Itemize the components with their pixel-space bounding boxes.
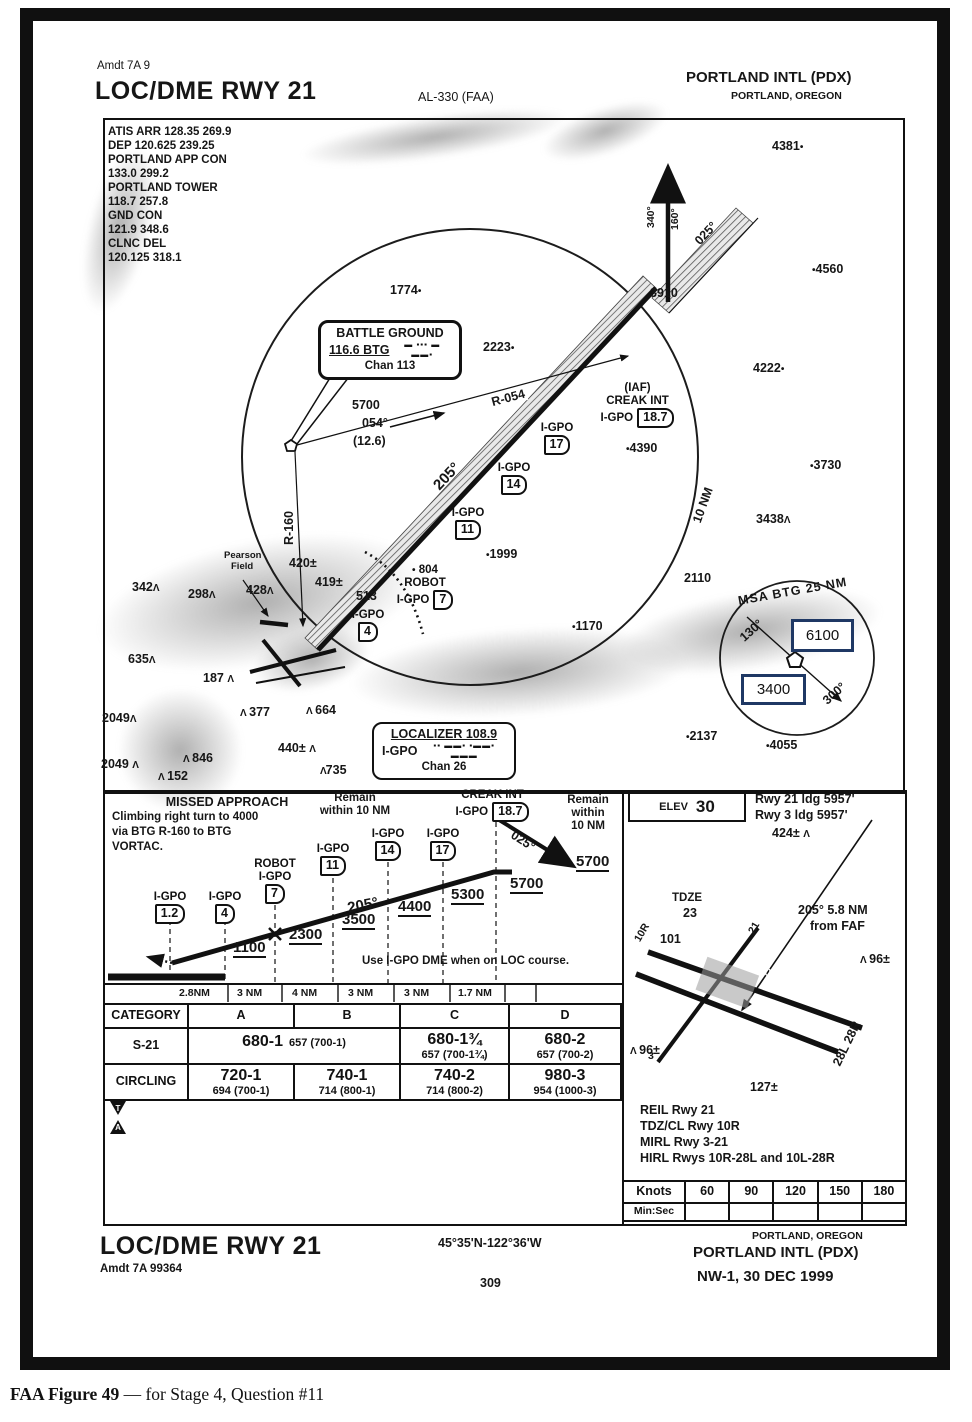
minsec-cell xyxy=(686,1204,728,1220)
comm-tower-name: PORTLAND TOWER xyxy=(108,182,218,195)
knots-150: 150 xyxy=(819,1182,861,1202)
spot-dot: • xyxy=(800,142,804,153)
localizer-box: LOCALIZER 108.9 I-GPO ▪▪ ▬▬▪ ▪▬▬▪ ▬▬▬ Ch… xyxy=(372,722,516,780)
spot-elevation: •4055 xyxy=(766,738,797,753)
spot-value: 4560 xyxy=(816,262,844,276)
obstacle-icon: Λ xyxy=(630,1046,636,1057)
remain-within-note-right: Remain within 10 NM xyxy=(558,794,618,834)
comm-appcon-name: PORTLAND APP CON xyxy=(108,154,227,167)
profile-fix-robot: ROBOT I-GPO 7 xyxy=(248,858,302,904)
amendment-note: Amdt 7A 9 xyxy=(97,60,150,73)
al-number: AL-330 (FAA) xyxy=(418,90,494,104)
spot-elevation: •3730 xyxy=(810,458,841,473)
sketch-obstacle: Λ 96± xyxy=(630,1043,660,1058)
spot-value: 846 xyxy=(192,751,213,765)
minimum-sub: 657 (700-1) xyxy=(289,1037,346,1049)
figure-caption-number: FAA Figure 49 xyxy=(10,1384,119,1404)
spot-elevation: 2223• xyxy=(483,340,514,355)
lighting-note: TDZ/CL Rwy 10R xyxy=(640,1119,740,1133)
comm-clnc-name: CLNC DEL xyxy=(108,238,166,251)
notes-box-border xyxy=(103,1095,624,1226)
fix-ident: I-GPO xyxy=(372,828,405,840)
dme-usage-note: Use I-GPO DME when on LOC course. xyxy=(362,955,569,968)
sketch-obstacle: 127± xyxy=(750,1080,778,1094)
spot-value: 4390 xyxy=(630,441,658,455)
spot-value: 3438 xyxy=(756,512,784,526)
footer-coordinates: 45°35'N-122°36'W xyxy=(438,1236,542,1250)
spot-value: 298 xyxy=(188,587,209,601)
segment-distance: 2.8NM xyxy=(179,987,210,999)
remain-within-note: Remain within 10 NM xyxy=(300,792,410,818)
footer-chart-title: LOC/DME RWY 21 xyxy=(100,1232,321,1261)
spot-elevation: •1170 xyxy=(572,619,603,634)
dme-box: 18.7 xyxy=(492,802,529,822)
minimums-header-a: A xyxy=(189,1005,293,1027)
minimums-s21-c: 680-1¾ 657 (700-1¾) xyxy=(401,1029,508,1063)
knots-label: Knots xyxy=(624,1182,684,1202)
dme-box: 14 xyxy=(501,475,528,495)
dme-box: 11 xyxy=(455,520,481,540)
obstacle-icon: Λ xyxy=(149,655,155,666)
spot-value: 420± xyxy=(289,556,317,570)
spot-elevation: 4381• xyxy=(772,139,803,154)
fix-ident: I-GPO xyxy=(317,843,350,855)
fix-ident: I-GPO xyxy=(154,891,187,903)
profile-altitude-4400: 4400 xyxy=(398,899,431,917)
dme-box: 4 xyxy=(215,904,235,924)
minimum-value: 980-3 xyxy=(545,1067,586,1085)
iaf-tag: (IAF) xyxy=(624,382,650,394)
remain-line: 10 NM xyxy=(558,820,618,833)
spot-value: 2223 xyxy=(483,340,511,354)
spot-value: 1999 xyxy=(490,547,518,561)
lighting-note: MIRL Rwy 3-21 xyxy=(640,1135,728,1149)
minsec-cell xyxy=(730,1204,772,1220)
minimum-value: 720-1 xyxy=(221,1067,262,1085)
segment-distance: 3 NM xyxy=(348,987,373,999)
minimums-circling-b: 740-1 714 (800-1) xyxy=(295,1065,399,1099)
comm-appcon-freq: 133.0 299.2 xyxy=(108,168,169,181)
spot-elevation: 3910 xyxy=(650,286,678,300)
obstacle-icon: Λ xyxy=(240,708,246,719)
remain-line: within 10 NM xyxy=(300,805,410,818)
spot-elevation: •4560 xyxy=(812,262,843,277)
figure-caption: FAA Figure 49 — for Stage 4, Question #1… xyxy=(10,1384,324,1405)
tdze-value: 23 xyxy=(683,906,697,920)
spot-value: 96± xyxy=(869,952,890,966)
figure-caption-text: — for Stage 4, Question #11 xyxy=(119,1384,324,1404)
dme-box: 14 xyxy=(375,841,402,861)
footer-city: PORTLAND, OREGON xyxy=(752,1230,863,1242)
pearson-field-label: Field xyxy=(231,562,253,573)
rwy21-landing-distance: Rwy 21 ldg 5957' xyxy=(755,792,855,806)
navaid-channel: Chan 113 xyxy=(329,360,451,373)
sketch-spot-101: 101 xyxy=(660,932,681,946)
msa-altitude-low: 3400 xyxy=(757,681,790,698)
spot-elevation: •1999 xyxy=(486,547,517,562)
profile-fix-17: I-GPO 17 xyxy=(416,828,470,861)
localizer-ident: I-GPO xyxy=(382,744,417,758)
minsec-cell xyxy=(863,1204,905,1220)
spot-elevation: 298Λ xyxy=(188,587,215,602)
minimums-circling-d: 980-3 954 (1000-3) xyxy=(510,1065,620,1099)
missed-approach-text: via BTG R-160 to BTG xyxy=(112,826,232,839)
airport-name: PORTLAND INTL (PDX) xyxy=(686,69,852,86)
radial-160: R-160 xyxy=(282,511,296,545)
airport-city: PORTLAND, OREGON xyxy=(731,90,842,102)
localizer-channel: Chan 26 xyxy=(382,761,506,774)
minimum-sub: 954 (1000-3) xyxy=(534,1085,597,1097)
spot-elevation: 4222• xyxy=(753,361,784,376)
spot-elevation: 428Λ xyxy=(246,583,273,598)
spot-value: 2049 xyxy=(102,711,130,725)
rwy3-landing-distance: Rwy 3 ldg 5957' xyxy=(755,808,848,822)
minimums-row-label-s21: S-21 xyxy=(105,1029,187,1063)
spot-value: 187 xyxy=(203,671,224,685)
spot-value: 2137 xyxy=(690,729,718,743)
footer-airport: PORTLAND INTL (PDX) xyxy=(693,1244,859,1261)
sketch-obstacle: 424± Λ xyxy=(772,826,809,841)
spot-elevation: Λ 846 xyxy=(183,751,213,766)
obstacle-icon: Λ xyxy=(860,955,866,966)
dme-box: 7 xyxy=(433,590,453,610)
navaid-freq: 116.6 BTG xyxy=(329,343,389,357)
minimums-header-b: B xyxy=(295,1005,399,1027)
knots-90: 90 xyxy=(730,1182,772,1202)
spot-value: 2110 xyxy=(684,571,711,585)
minimums-header-c: C xyxy=(401,1005,508,1027)
obstacle-icon: Λ xyxy=(158,772,164,783)
msa-altitude-high: 6100 xyxy=(806,627,839,644)
iaf-creak-label: (IAF) CREAK INT I-GPO 18.7 xyxy=(590,382,685,428)
spot-elevation: 1774• xyxy=(390,283,421,298)
profile-creak-label: CREAK INT I-GPO 18.7 xyxy=(430,789,555,822)
morse-code: ▬ ▪▪▪ ▬ ▬▬▪ xyxy=(393,340,451,360)
dme-box: 1.2 xyxy=(155,904,185,924)
minsec-label: Min:Sec xyxy=(624,1204,684,1220)
obstacle-icon: Λ xyxy=(227,674,233,685)
elev-label: ELEV xyxy=(659,801,688,814)
spot-elevation: 2049 Λ xyxy=(101,757,138,772)
spot-value: 1774 xyxy=(390,283,418,297)
profile-fix-1-2: I-GPO 1.2 xyxy=(143,891,197,924)
tdze-label: TDZE xyxy=(672,892,702,905)
fix-robot: • 804 ROBOT I-GPO 7 xyxy=(385,564,465,610)
obstacle-icon: Λ xyxy=(209,590,215,601)
feeder-course: 054° xyxy=(362,416,388,430)
spot-elevation: 187 Λ xyxy=(203,671,233,686)
battle-ground-vortac-box: BATTLE GROUND 116.6 BTG ▬ ▪▪▪ ▬ ▬▬▪ Chan… xyxy=(318,320,462,380)
obstacle-icon: Λ xyxy=(803,829,809,840)
minimums-header-d: D xyxy=(510,1005,620,1027)
profile-altitude-5700: 5700 xyxy=(510,876,543,894)
msa-annotation-3400: 3400 xyxy=(741,674,806,705)
obstacle-icon: Λ xyxy=(306,706,312,717)
dme-box: 4 xyxy=(358,622,378,642)
alternate-symbol-letter: A xyxy=(115,1123,121,1132)
robot-name: ROBOT xyxy=(404,577,446,589)
localizer-freq: LOCALIZER 108.9 xyxy=(382,727,506,741)
fix-igpo-14: I-GPO 14 xyxy=(487,462,541,495)
fix-ident: I-GPO xyxy=(601,412,634,424)
fix-ident: I-GPO xyxy=(541,422,574,434)
minimums-circling-a: 720-1 694 (700-1) xyxy=(189,1065,293,1099)
dme-box: 11 xyxy=(320,856,346,876)
spot-value: 4381 xyxy=(772,139,800,153)
fix-ident: I-GPO xyxy=(397,594,430,606)
approach-chart-page: Amdt 7A 9 LOC/DME RWY 21 AL-330 (FAA) PO… xyxy=(0,0,972,1422)
fix-ident: I-GPO xyxy=(259,871,292,883)
profile-altitude-5700-creak: 5700 xyxy=(576,854,609,872)
minimums-row-label-circling: CIRCLING xyxy=(105,1065,187,1099)
morse-code: ▪▪ ▬▬▪ ▪▬▬▪ ▬▬▬ xyxy=(422,741,506,761)
robot-name: ROBOT xyxy=(254,858,296,870)
remain-line: within xyxy=(558,807,618,820)
dme-box: 17 xyxy=(430,841,457,861)
spot-value: 4055 xyxy=(770,738,798,752)
obstacle-icon: Λ xyxy=(784,515,790,526)
spot-elevation: 419± xyxy=(315,575,343,589)
missed-approach-title-text: MISSED APPROACH xyxy=(166,795,288,809)
obstacle-icon: Λ xyxy=(132,760,138,771)
faf-distance-note2: from FAF xyxy=(810,919,865,933)
spot-value: 1170 xyxy=(576,619,603,633)
spot-dot: • xyxy=(781,364,785,375)
profile-fix-14: I-GPO 14 xyxy=(361,828,415,861)
profile-fix-4: I-GPO 4 xyxy=(198,891,252,924)
spot-value: 152 xyxy=(167,769,188,783)
lighting-note: REIL Rwy 21 xyxy=(640,1103,715,1117)
spot-value: 4222 xyxy=(753,361,781,375)
footer-edition-date: NW-1, 30 DEC 1999 xyxy=(697,1268,833,1285)
faf-distance-note: 205° 5.8 NM xyxy=(798,903,868,917)
spot-value: 440± xyxy=(278,741,306,755)
comm-atis: ATIS ARR 128.35 269.9 xyxy=(108,126,231,139)
knots-180: 180 xyxy=(863,1182,905,1202)
obstacle-icon: Λ xyxy=(183,754,189,765)
msa-annotation-6100: 6100 xyxy=(791,619,854,652)
spot-value: 419± xyxy=(315,575,343,589)
minimum-sub: 657 (700-1¾) xyxy=(421,1049,487,1061)
minimum-value: 740-2 xyxy=(434,1067,475,1085)
navaid-name: BATTLE GROUND xyxy=(329,326,451,340)
knots-60: 60 xyxy=(686,1182,728,1202)
spot-value: 664 xyxy=(315,703,336,717)
takeoff-symbol-letter: T xyxy=(116,1104,121,1113)
spot-elevation: Λ735 xyxy=(320,763,347,778)
missed-course-160: 160° xyxy=(669,208,681,230)
fix-igpo-4: I-GPO 4 xyxy=(341,609,395,642)
spot-value: 428 xyxy=(246,583,267,597)
obstacle-icon: Λ xyxy=(153,583,159,594)
speed-time-table: Knots 60 90 120 150 180 Min:Sec xyxy=(622,1180,907,1222)
spot-elevation: 2049Λ xyxy=(102,711,135,726)
fix-igpo-17: I-GPO 17 xyxy=(530,422,584,455)
missed-approach-text: VORTAC. xyxy=(112,841,163,854)
spot-dot: • xyxy=(418,286,422,297)
knots-120: 120 xyxy=(774,1182,816,1202)
missed-course-340: 340° xyxy=(645,206,657,228)
spot-value: 424± xyxy=(772,826,800,840)
segment-distance: 1.7 NM xyxy=(458,987,492,999)
minimum-value: 680-1 xyxy=(242,1033,283,1051)
fix-ident: I-GPO xyxy=(498,462,531,474)
spot-elevation: 440± Λ xyxy=(278,741,315,756)
spot-value: 2049 xyxy=(101,757,129,771)
spot-value: 127± xyxy=(750,1080,778,1094)
fix-ident: I-GPO xyxy=(209,891,242,903)
footer-amendment: Amdt 7A 99364 xyxy=(100,1263,182,1276)
minimum-sub: 714 (800-2) xyxy=(426,1085,483,1097)
spot-value: 96± xyxy=(639,1043,660,1057)
spot-elevation: 635Λ xyxy=(128,652,155,667)
spot-elevation: •4390 xyxy=(626,441,657,456)
minimum-sub: 694 (700-1) xyxy=(213,1085,270,1097)
spot-value: 735 xyxy=(326,763,347,777)
spot-elevation: 342Λ xyxy=(132,580,159,595)
spot-value: 513 xyxy=(356,589,377,603)
profile-altitude-1100: 1100 xyxy=(233,940,266,958)
profile-altitude-5300: 5300 xyxy=(451,887,484,905)
spot-dot: • xyxy=(412,565,416,576)
footer-page-number: 309 xyxy=(480,1276,501,1290)
profile-altitude-2300: 2300 xyxy=(289,927,322,945)
spot-elevation: Λ 152 xyxy=(158,769,188,784)
fix-ident: I-GPO xyxy=(456,806,489,818)
remain-line: Remain xyxy=(558,794,618,807)
fix-ident: I-GPO xyxy=(427,828,460,840)
minimum-sub: 657 (700-2) xyxy=(537,1049,594,1061)
chart-title: LOC/DME RWY 21 xyxy=(95,77,316,106)
obstacle-icon: Λ xyxy=(267,586,273,597)
dme-box: 7 xyxy=(265,884,285,904)
elev-value: 30 xyxy=(696,797,715,817)
spot-elevation: 2110 xyxy=(684,571,711,585)
fix-ident: I-GPO xyxy=(352,609,385,621)
spot-elevation: •2137 xyxy=(686,729,717,744)
comm-gnd-freq: 121.9 348.6 xyxy=(108,224,169,237)
minsec-cell xyxy=(819,1204,861,1220)
minimums-circling-c: 740-2 714 (800-2) xyxy=(401,1065,508,1099)
feeder-distance: (12.6) xyxy=(353,434,386,448)
minimum-sub: 714 (800-1) xyxy=(319,1085,376,1097)
creak-name: CREAK INT xyxy=(461,789,524,801)
sketch-obstacle: Λ 96± xyxy=(860,952,890,967)
dme-box: 17 xyxy=(544,435,571,455)
minimum-value: 680-2 xyxy=(545,1031,586,1049)
fix-ident: I-GPO xyxy=(452,507,485,519)
feeder-altitude: 5700 xyxy=(352,398,380,412)
spot-elevation: Λ 664 xyxy=(306,703,336,718)
spot-value: 3910 xyxy=(650,286,678,300)
minimums-table: CATEGORY A B C D S-21 680-1 657 (700-1) … xyxy=(103,1003,622,1101)
segment-distance: 4 NM xyxy=(292,987,317,999)
robot-elevation: 804 xyxy=(419,564,438,576)
dme-box: 18.7 xyxy=(637,408,674,428)
spot-dot: • xyxy=(511,343,515,354)
fix-igpo-11: I-GPO 11 xyxy=(441,507,495,540)
spot-elevation: 513 xyxy=(356,589,377,603)
spot-elevation: 3438Λ xyxy=(756,512,789,527)
lighting-note: HIRL Rwys 10R-28L and 10L-28R xyxy=(640,1151,835,1165)
spot-value: 342 xyxy=(132,580,153,594)
iaf-name: CREAK INT xyxy=(606,395,669,407)
minimums-s21-ab: 680-1 657 (700-1) xyxy=(189,1029,399,1063)
missed-approach-text: Climbing right turn to 4000 xyxy=(112,811,258,824)
obstacle-icon: Λ xyxy=(309,744,315,755)
spot-elevation: 420± xyxy=(289,556,317,570)
airport-elevation-box: ELEV 30 xyxy=(628,792,746,822)
minimums-s21-d: 680-2 657 (700-2) xyxy=(510,1029,620,1063)
comm-tower-freq: 118.7 257.8 xyxy=(108,196,168,209)
obstacle-icon: Λ xyxy=(130,714,136,725)
comm-clnc-freq: 120.125 318.1 xyxy=(108,252,182,265)
profile-fix-11: I-GPO 11 xyxy=(306,843,360,876)
comm-gnd-name: GND CON xyxy=(108,210,162,223)
minimum-value: 740-1 xyxy=(327,1067,368,1085)
remain-line: Remain xyxy=(300,792,410,805)
spot-value: 3730 xyxy=(814,458,842,472)
minimum-value: 680-1¾ xyxy=(427,1031,481,1049)
spot-value: 635 xyxy=(128,652,149,666)
segment-distance: 3 NM xyxy=(404,987,429,999)
comm-dep: DEP 120.625 239.25 xyxy=(108,140,215,153)
minimums-header-category: CATEGORY xyxy=(105,1005,187,1027)
segment-distance: 3 NM xyxy=(237,987,262,999)
minsec-cell xyxy=(774,1204,816,1220)
spot-elevation: Λ 377 xyxy=(240,705,270,720)
spot-value: 377 xyxy=(249,705,270,719)
